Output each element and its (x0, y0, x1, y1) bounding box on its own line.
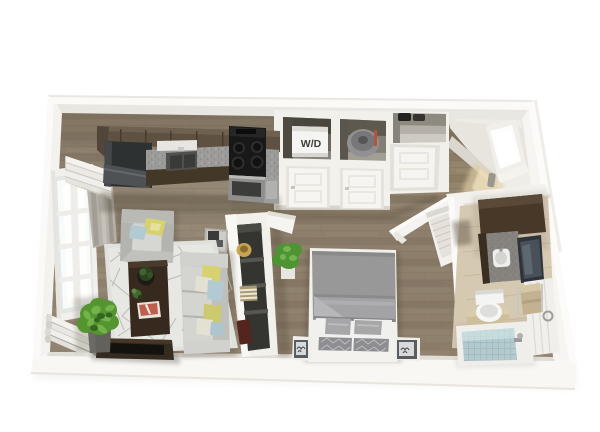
svg-text:W/D: W/D (301, 138, 322, 150)
